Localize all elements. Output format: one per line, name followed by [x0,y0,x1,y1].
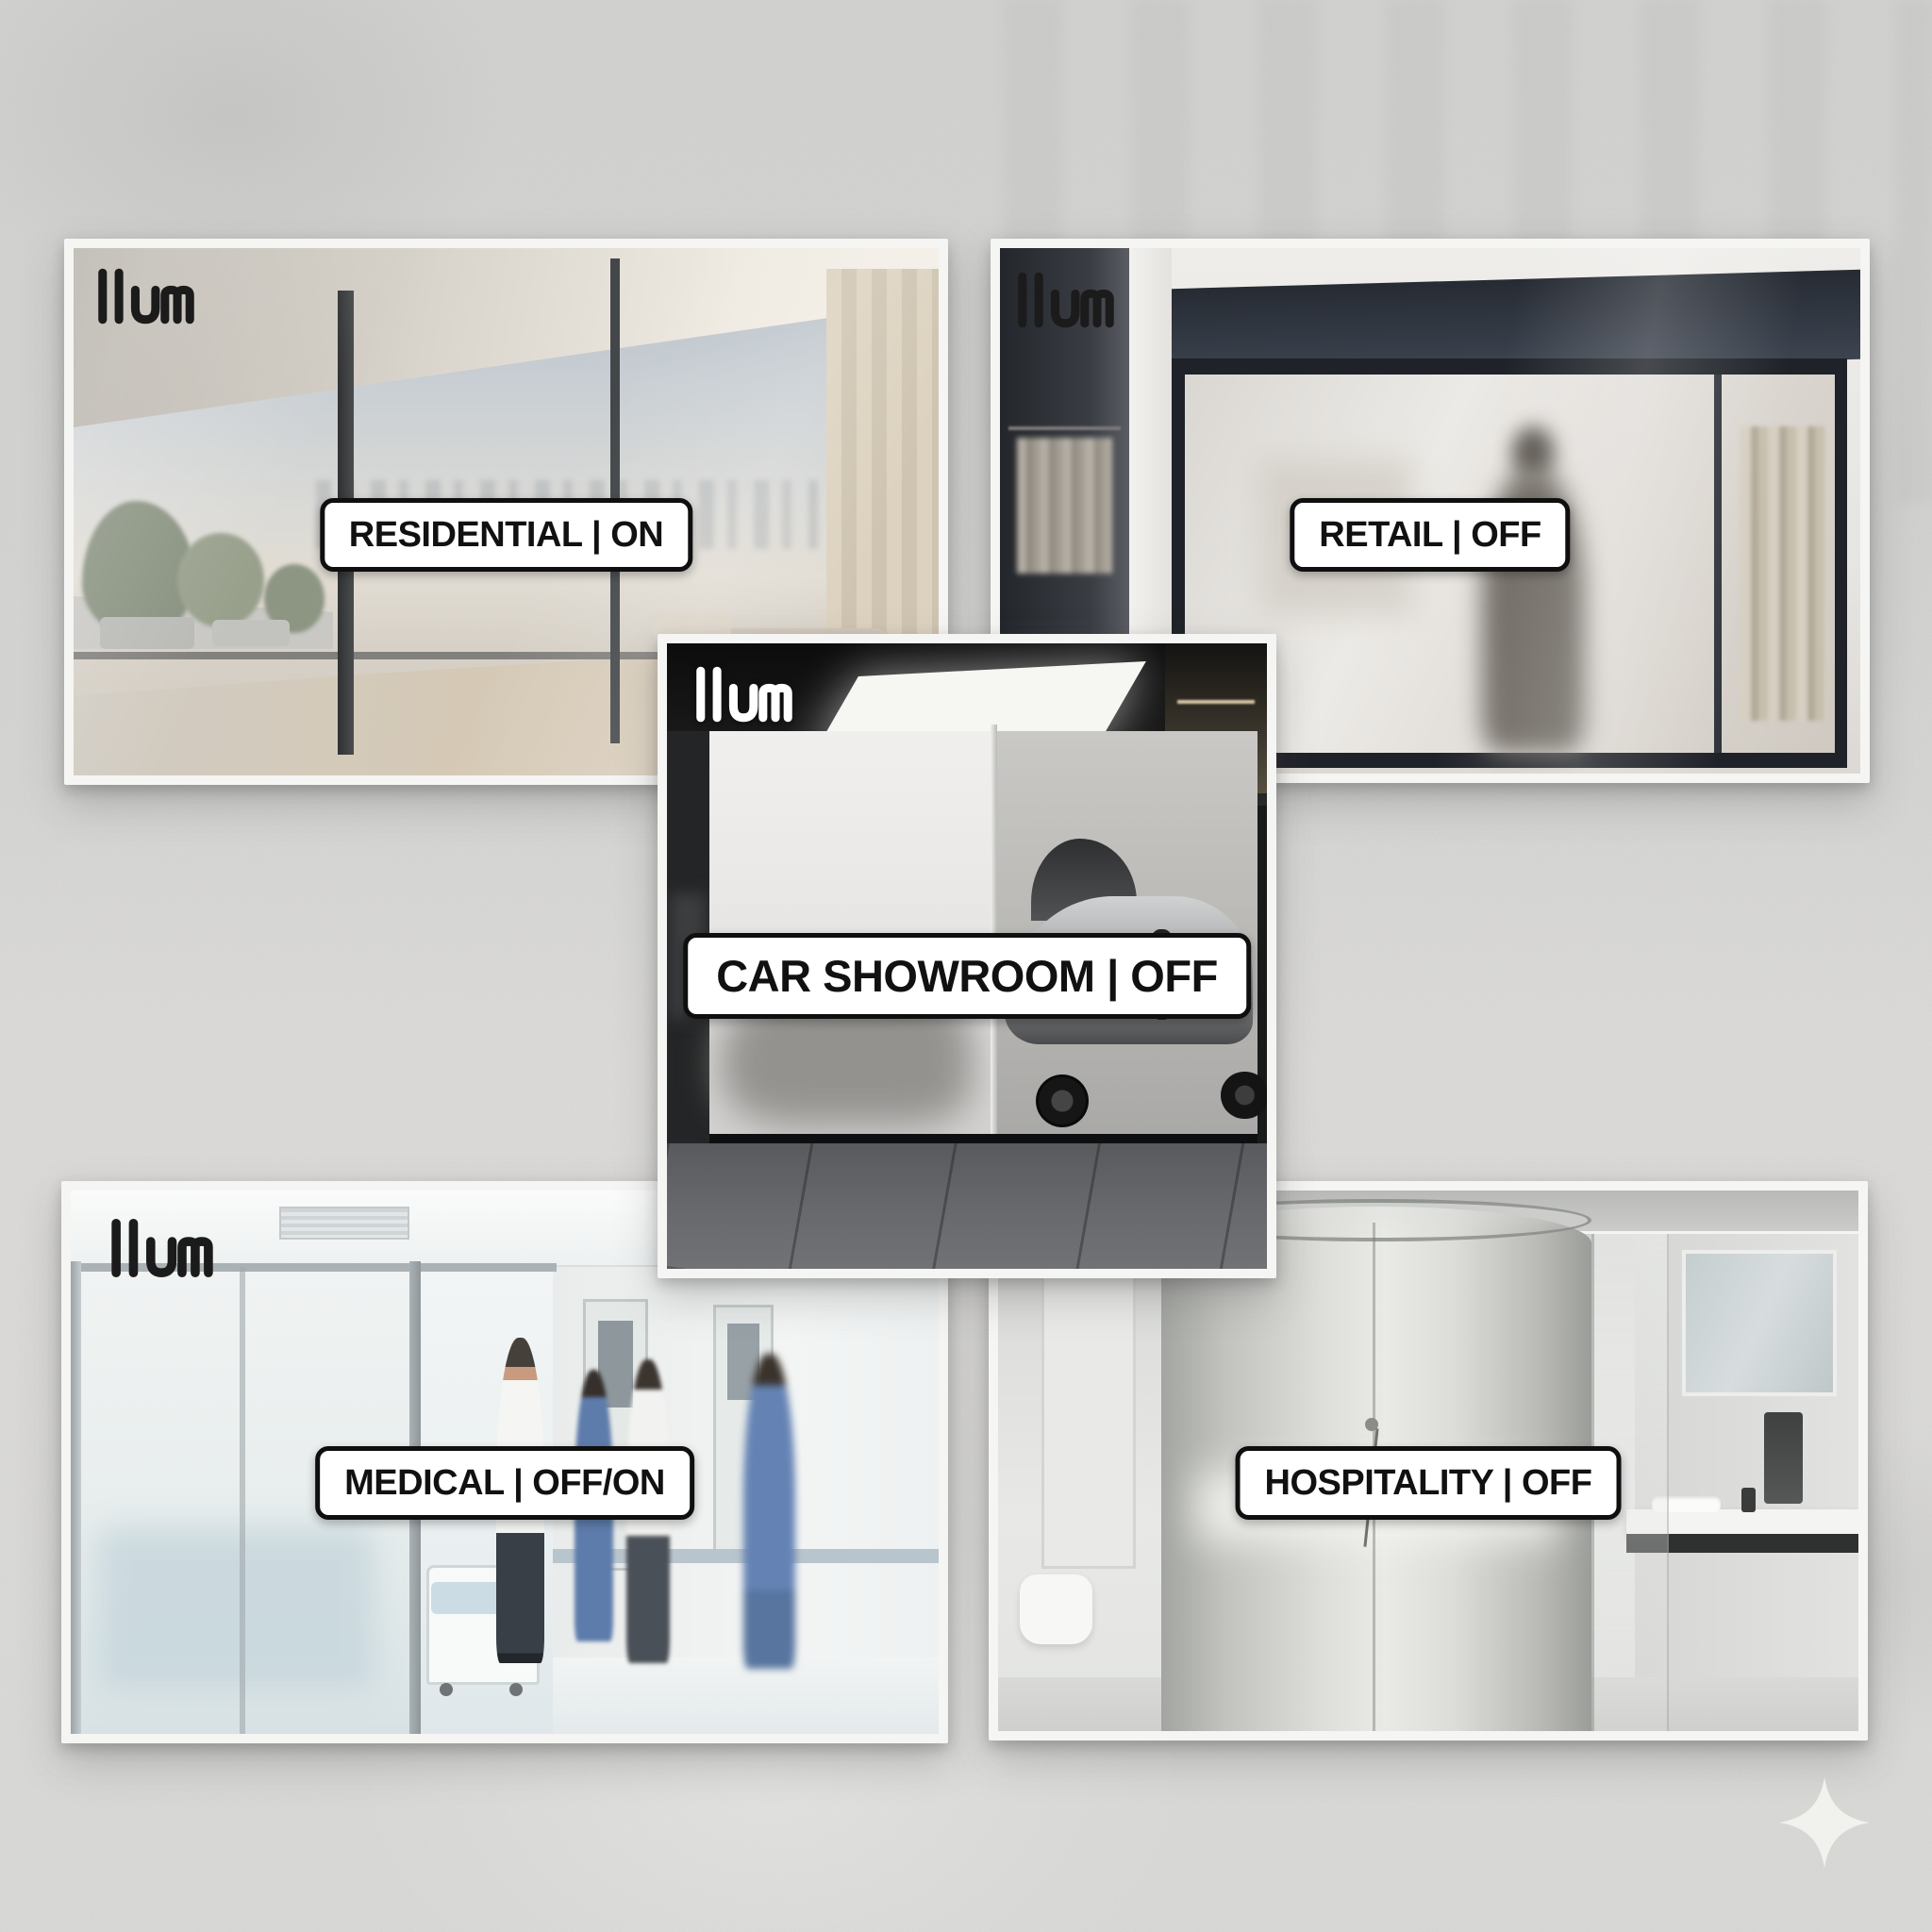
ceiling-vent [279,1207,409,1240]
door [1041,1272,1136,1569]
llum-logo: llum [97,267,195,325]
bed-wheel [440,1683,453,1696]
poster-canvas: llum RESIDENTIAL | ON llum RETAI [0,0,1932,1932]
llum-logo: llum [110,1217,214,1279]
label-retail: RETAIL | OFF [1290,498,1570,572]
label-medical: MEDICAL | OFF/ON [315,1446,694,1520]
llum-logo: llum [695,665,793,724]
mirror [1682,1250,1837,1396]
corridor-floor [553,1657,939,1734]
label-hospitality: HOSPITALITY | OFF [1236,1446,1622,1520]
sparkle-icon [1779,1777,1870,1868]
toilet [1020,1574,1093,1644]
bed-wheel [509,1683,523,1696]
blurred-bed [97,1527,375,1690]
label-car-showroom: CAR SHOWROOM | OFF [683,933,1251,1019]
car-rear-wheel [1221,1072,1267,1119]
wall-light-strip [1177,700,1256,704]
toiletry-bottle [1741,1488,1756,1512]
label-residential: RESIDENTIAL | ON [320,498,692,572]
card-car-showroom: llum CAR SHOWROOM | OFF [658,634,1276,1278]
nurse-figure [743,1354,795,1669]
llum-logo: llum [1017,271,1115,329]
partition-post [240,1267,245,1734]
partition-post [71,1261,81,1734]
car-front-wheel [1036,1074,1089,1127]
hanging-towel [1764,1412,1803,1504]
floor-grout-lines [667,1143,1267,1269]
car-showroom-photo: llum CAR SHOWROOM | OFF [667,643,1267,1269]
